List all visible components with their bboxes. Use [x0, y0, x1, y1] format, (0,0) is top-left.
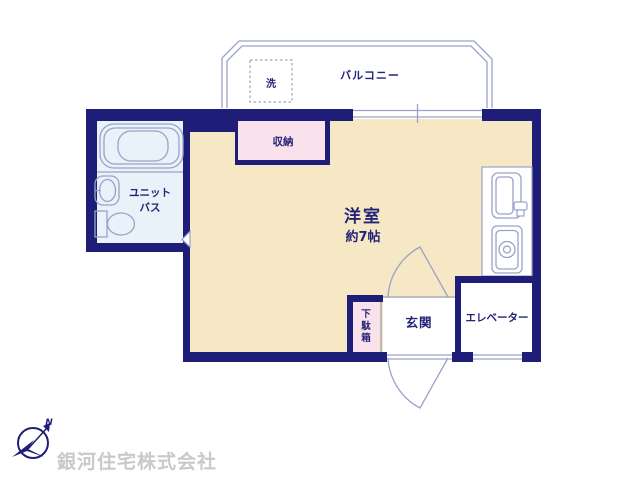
- compass-icon: N: [12, 418, 53, 458]
- bath-floor: [97, 121, 183, 243]
- balcony-label: バルコニー: [340, 69, 400, 82]
- shoe-cabinet-char-1: 下: [361, 309, 371, 320]
- elevator-label: エレベーター: [466, 312, 529, 324]
- wall-right: [532, 109, 541, 362]
- closet: 収納: [235, 121, 330, 165]
- entrance-door-opening: [387, 352, 452, 362]
- entrance-label: 玄関: [405, 315, 432, 330]
- kitchen-counter: [482, 167, 532, 276]
- shoe-cabinet-char-2: 駄: [361, 320, 371, 332]
- main-room-size: 約7帖: [345, 229, 380, 245]
- elevator: エレベーター: [455, 276, 541, 352]
- company-watermark: 銀河住宅株式会社: [57, 450, 217, 473]
- wall-bath-bottom: [86, 243, 190, 252]
- floor-plan: 洗 バルコニー 収納: [0, 0, 640, 480]
- main-room-label: 洋室: [344, 206, 382, 227]
- elevator-door-opening: [473, 352, 522, 362]
- bath-label-line1: ユニット: [129, 187, 171, 199]
- shoe-cabinet-char-3: 箱: [360, 332, 371, 344]
- compass-north-label: N: [45, 418, 53, 428]
- closet-label: 収納: [273, 135, 294, 148]
- washer-label: 洗: [266, 77, 276, 90]
- entrance-block: 下 駄 箱 玄関: [347, 295, 455, 352]
- balcony: 洗 バルコニー: [222, 41, 492, 108]
- wall-pillar: [188, 109, 237, 132]
- bath-label-line2: バス: [140, 202, 161, 214]
- floor-plan-drawing: 洗 バルコニー 収納: [0, 0, 640, 480]
